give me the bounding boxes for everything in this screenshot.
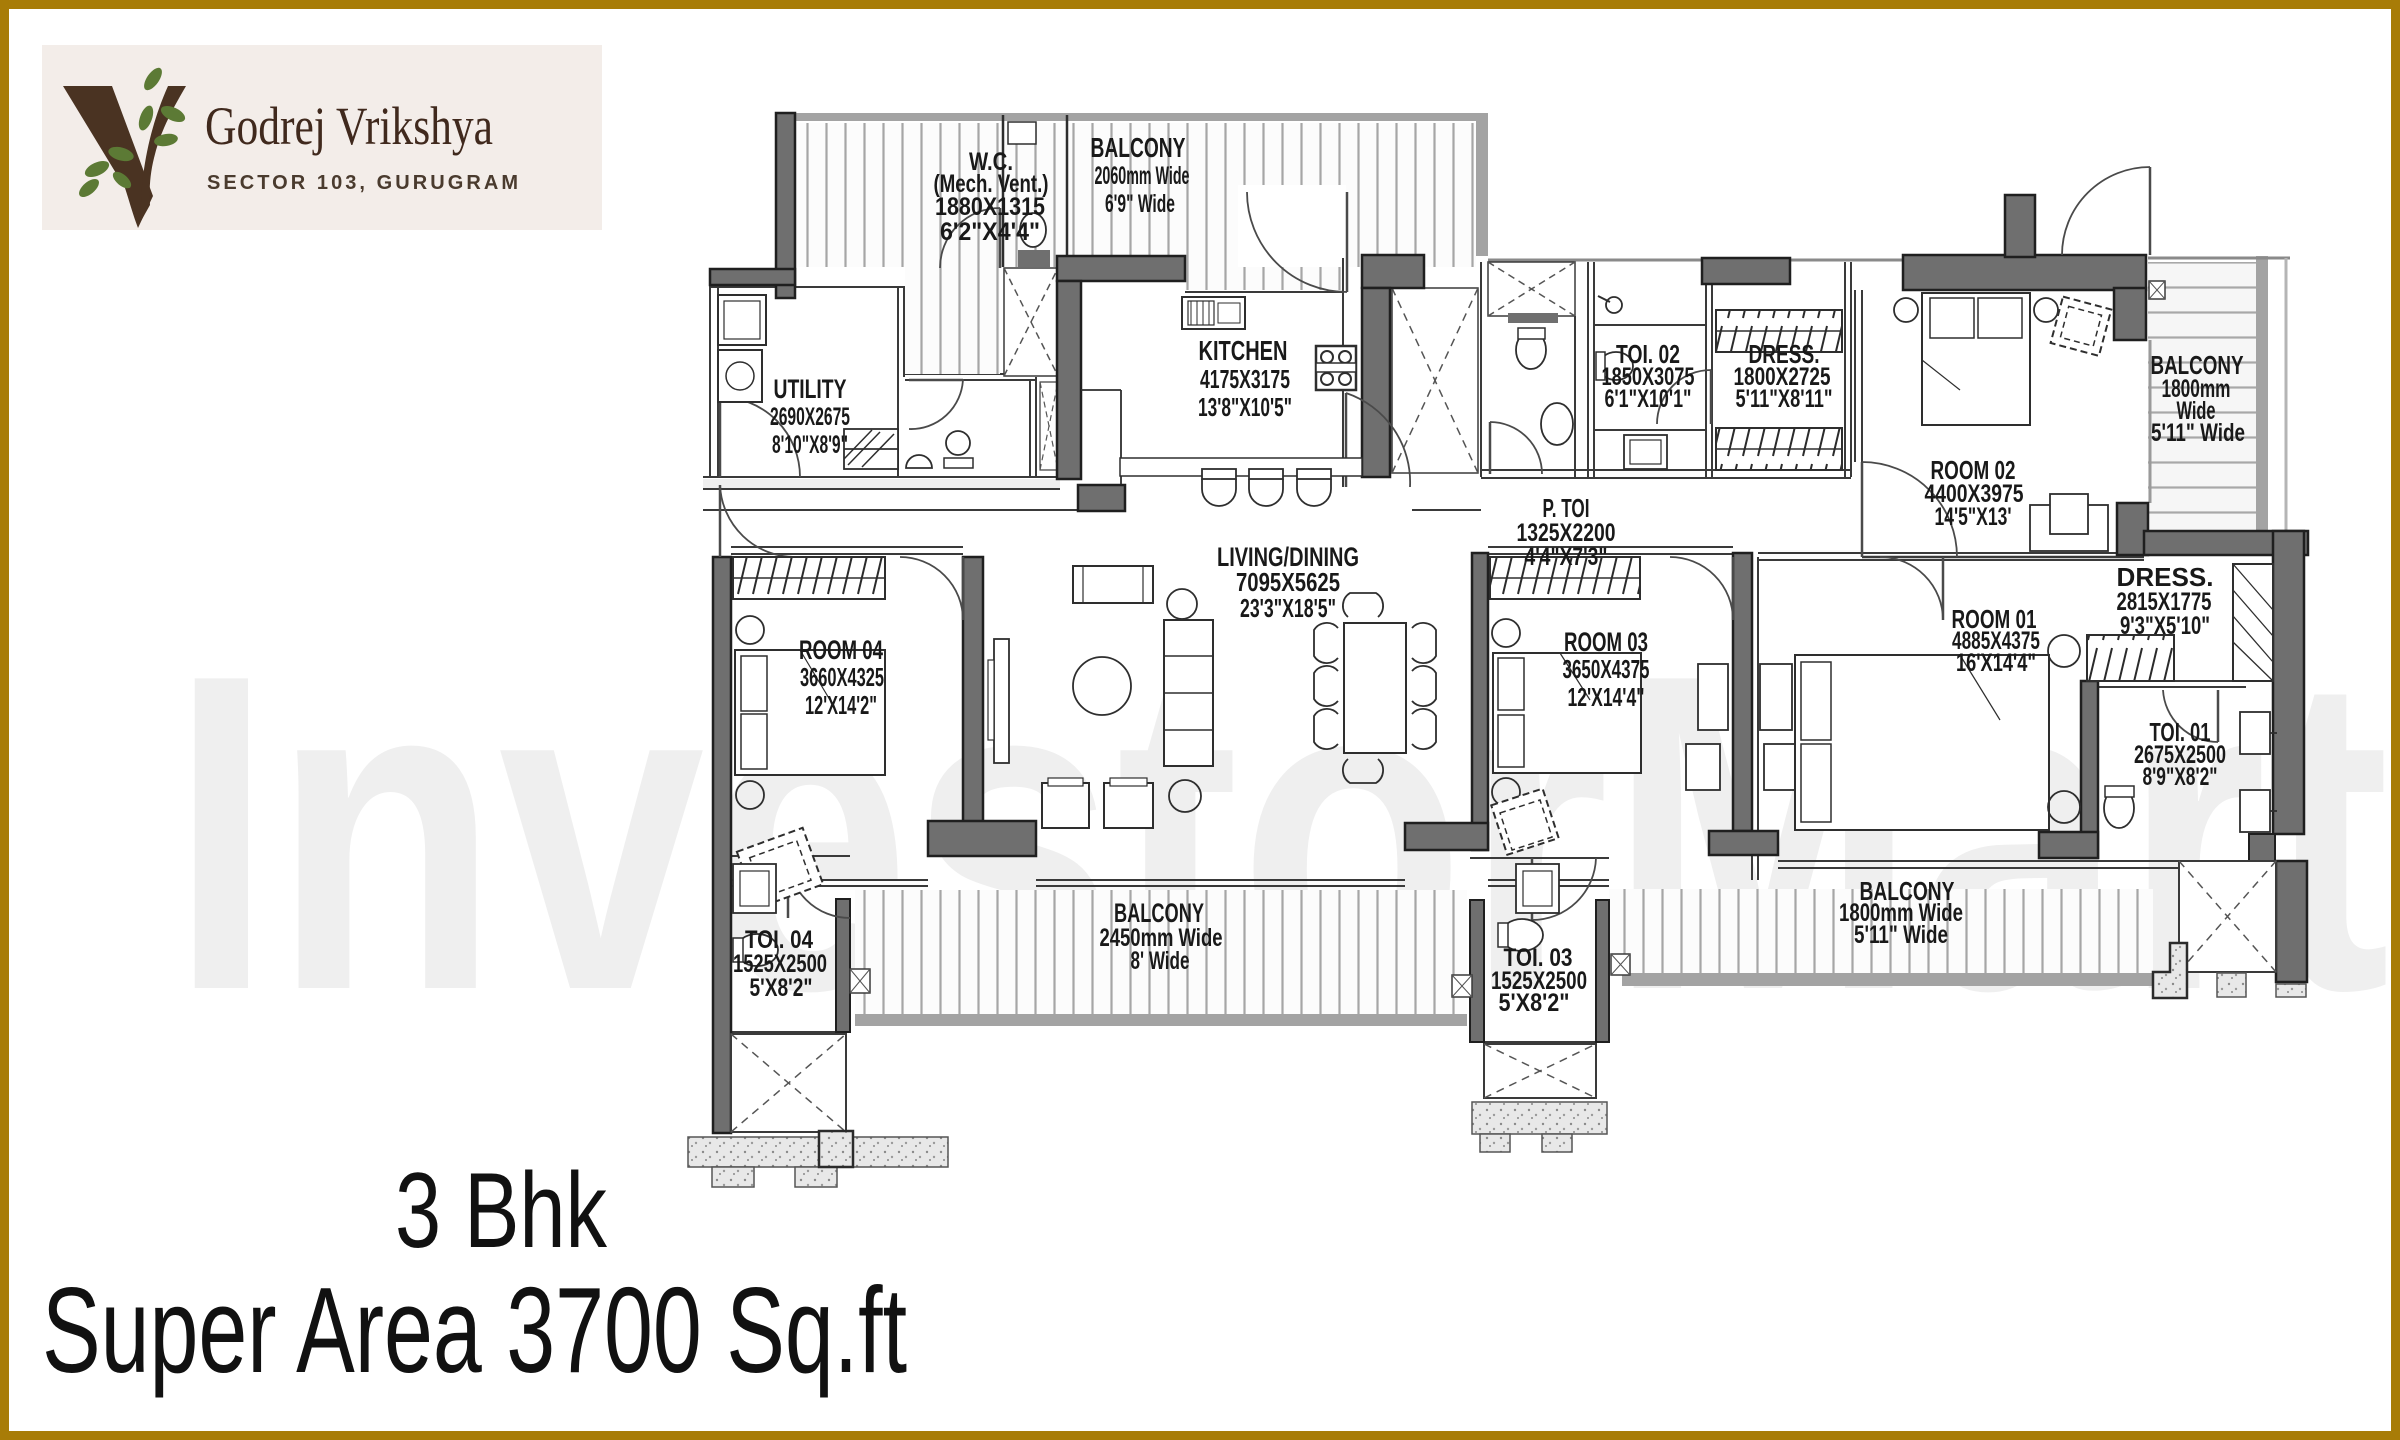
svg-text:8' Wide: 8' Wide — [1131, 947, 1190, 975]
svg-text:3 Bhk: 3 Bhk — [395, 1150, 607, 1270]
svg-text:13'8"X10'5": 13'8"X10'5" — [1198, 392, 1292, 422]
svg-text:3660X4325: 3660X4325 — [800, 662, 884, 692]
svg-text:14'5"X13': 14'5"X13' — [1935, 503, 2012, 531]
svg-text:12'X14'4": 12'X14'4" — [1568, 682, 1645, 712]
svg-text:9'3"X5'10": 9'3"X5'10" — [2120, 612, 2210, 640]
svg-text:5'X8'2": 5'X8'2" — [1499, 989, 1570, 1017]
svg-text:8'9"X8'2": 8'9"X8'2" — [2143, 763, 2218, 791]
svg-text:2690X2675: 2690X2675 — [770, 403, 850, 431]
svg-text:6'9" Wide: 6'9" Wide — [1105, 190, 1175, 218]
svg-text:23'3"X18'5": 23'3"X18'5" — [1240, 593, 1336, 623]
svg-text:ROOM 04: ROOM 04 — [799, 635, 883, 665]
svg-text:6'1"X10'1": 6'1"X10'1" — [1605, 385, 1692, 413]
svg-text:BALCONY: BALCONY — [1091, 132, 1186, 163]
svg-text:12'X14'2": 12'X14'2" — [805, 690, 877, 720]
svg-text:6'2"X4'4": 6'2"X4'4" — [940, 218, 1040, 246]
svg-text:5'X8'2": 5'X8'2" — [750, 974, 813, 1002]
svg-text:SECTOR 103, GURUGRAM: SECTOR 103, GURUGRAM — [207, 172, 518, 194]
svg-text:4'4"X7'3": 4'4"X7'3" — [1525, 543, 1608, 571]
svg-text:Super Area 3700 Sq.ft: Super Area 3700 Sq.ft — [42, 1262, 907, 1398]
svg-text:1880X1315: 1880X1315 — [935, 193, 1045, 221]
svg-text:5'11"X8'11": 5'11"X8'11" — [1736, 385, 1833, 413]
svg-text:5'11" Wide: 5'11" Wide — [1854, 921, 1948, 949]
svg-text:4175X3175: 4175X3175 — [1200, 364, 1290, 394]
svg-text:3650X4375: 3650X4375 — [1563, 654, 1650, 684]
svg-text:16'X14'4": 16'X14'4" — [1956, 649, 2036, 677]
svg-text:2060mm Wide: 2060mm Wide — [1095, 162, 1190, 190]
svg-text:KITCHEN: KITCHEN — [1199, 335, 1288, 366]
svg-text:UTILITY: UTILITY — [774, 374, 847, 404]
svg-text:8'10"X8'9": 8'10"X8'9" — [772, 431, 848, 459]
svg-text:ROOM 03: ROOM 03 — [1564, 627, 1648, 657]
svg-text:5'11" Wide: 5'11" Wide — [2151, 419, 2245, 447]
svg-text:Godrej Vrikshya: Godrej Vrikshya — [205, 96, 493, 156]
